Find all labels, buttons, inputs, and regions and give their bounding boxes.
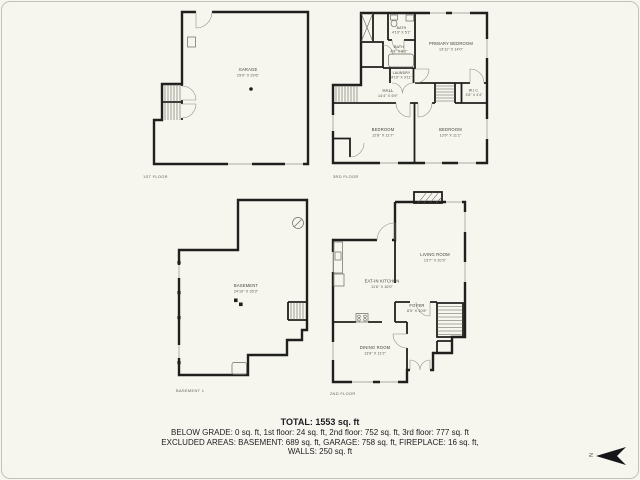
foyer-dims: 8'5" X 10'8" (407, 309, 428, 313)
primary-bedroom-label: PRIMARY BEDROOM (429, 41, 473, 46)
bath-top-dims: 4'10" X 5'1" (392, 31, 412, 35)
third-outer-walls (333, 13, 487, 163)
second-floor-plan: LIVING ROOM 13'7" X 20'3" EAT-IN KITCHEN… (330, 190, 490, 395)
basement-plan: BASEMENT 24'10" X 35'3" (150, 190, 330, 400)
second-stairs-icon (437, 307, 463, 335)
bath-top-label: BATH (397, 26, 407, 30)
burner-icon (364, 315, 367, 318)
second-outer-walls (333, 202, 465, 382)
support-column-dot (239, 303, 243, 307)
wall-post (177, 261, 180, 264)
summary-total: TOTAL: 1553 sq. ft (0, 417, 640, 427)
utility-box-icon (188, 37, 196, 47)
burner-icon (358, 315, 361, 318)
kitchen-label: EAT-IN KITCHEN (365, 279, 400, 284)
north-letter: N (587, 453, 593, 457)
sink-icon (406, 15, 414, 21)
wic-label: W.I.C. (469, 89, 479, 93)
hall-dims: 14'4" X 6'9" (378, 94, 399, 98)
bedroom-left-label: BEDROOM (372, 127, 395, 132)
garage-door-arcs (182, 12, 212, 118)
floor-label-1st: 1ST FLOOR (143, 174, 168, 179)
kitchen-sink-icon (335, 252, 341, 260)
bathtub-icon (389, 54, 414, 67)
living-room-dims: 13'7" X 20'3" (424, 259, 447, 263)
bath-mid-dims: 4'8" X 5'2" (391, 50, 409, 54)
burner-icon (364, 319, 367, 322)
summary-excluded: EXCLUDED AREAS: BASEMENT: 689 sq. ft, GA… (0, 438, 640, 448)
bedroom-right-label: BEDROOM (439, 127, 462, 132)
kitchen-dims: 11'6" X 16'0" (371, 285, 393, 289)
wall-post (177, 361, 180, 364)
bedroom-right-dims: 13'9" X 11'1" (440, 134, 462, 138)
wall-post (177, 291, 180, 294)
wic-dims: 3'8" X 4'4" (466, 93, 484, 97)
floor-label-2nd: 2ND FLOOR (330, 391, 356, 396)
support-column-dot (234, 299, 238, 303)
north-arrow-icon: N (586, 444, 632, 468)
basement-dims: 24'10" X 35'3" (234, 290, 259, 294)
floor-label-basement: BASEMENT 1 (176, 388, 204, 393)
primary-bedroom-dims: 13'11" X 14'0" (439, 48, 464, 52)
bedroom-left-dims: 12'8" X 11'7" (372, 134, 394, 138)
summary-walls: WALLS: 250 sq. ft (0, 447, 640, 457)
third-floor-plan: BATH 4'10" X 5'1" BATH 4'8" X 5'2" LAUND… (330, 5, 490, 165)
north-arrow-shape (596, 447, 626, 465)
linen-closet-icon (361, 13, 373, 42)
garage-label: GARAGE (239, 67, 258, 72)
hall-label: HALL (382, 88, 394, 93)
floorplan-page: GARAGE 29'9" X 29'6" 1ST FLOOR BATH 4'10… (0, 0, 640, 480)
summary-below-grade: BELOW GRADE: 0 sq. ft, 1st floor: 24 sq.… (0, 428, 640, 438)
first-floor-plan: GARAGE 29'9" X 29'6" (150, 5, 310, 167)
sump-slash (295, 220, 302, 227)
burner-icon (358, 319, 361, 322)
dining-room-label: DINING ROOM (360, 345, 391, 350)
garage-center-dot (249, 87, 253, 91)
laundry-dims: 4'10" X 3'11" (391, 76, 412, 80)
fridge-icon (334, 274, 345, 286)
third-inner-walls (333, 13, 487, 163)
basement-stairs-icon (291, 302, 303, 320)
third-door-arcs (350, 40, 484, 157)
garage-dims: 29'9" X 29'6" (237, 74, 260, 78)
dining-room-dims: 13'9" X 11'2" (364, 352, 386, 356)
basement-label: BASEMENT (234, 283, 259, 288)
laundry-label: LAUNDRY (393, 71, 411, 75)
toilet-icon (391, 15, 398, 20)
floor-label-3rd: 3RD FLOOR (333, 174, 359, 179)
area-summary: TOTAL: 1553 sq. ft BELOW GRADE: 0 sq. ft… (0, 417, 640, 457)
foyer-label: FOYER (409, 303, 424, 308)
bath-mid-label: BATH (394, 45, 404, 49)
wall-post (177, 316, 180, 319)
living-room-label: LIVING ROOM (420, 252, 450, 257)
furnace-icon (232, 363, 247, 375)
